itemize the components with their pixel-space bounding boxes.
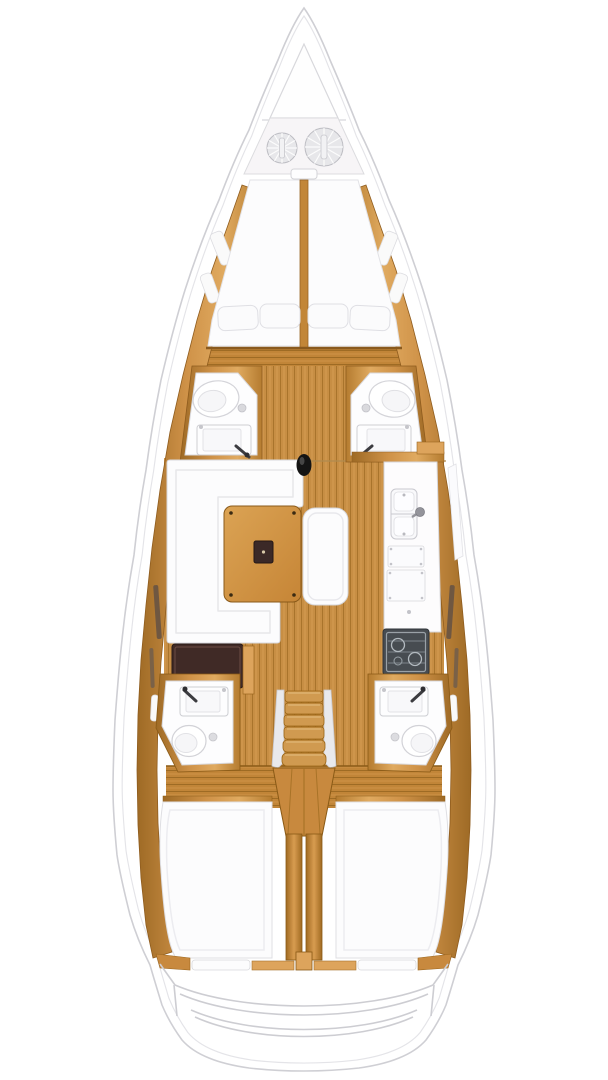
galley-faucet [416,508,425,517]
galley-fridge-panel [387,570,425,601]
fwd-head-port [180,366,262,462]
chart-table-seat [243,646,254,694]
galley-stove [383,629,429,675]
rope-coil-port [267,133,297,163]
floorplan-page [0,0,608,1080]
companionway-stairs [272,690,336,768]
rope-coil-starboard [305,128,343,166]
galley-counter-panel [388,546,424,567]
aft-berth-starboard [336,796,448,958]
salon-island-bench [303,508,348,605]
mast-post [297,454,312,476]
fwd-head-starboard [346,366,428,462]
bow-hatch-handle [291,169,317,179]
salon-table [224,506,301,602]
aft-berth-port [160,796,272,958]
floorplan-canvas [0,0,608,1080]
